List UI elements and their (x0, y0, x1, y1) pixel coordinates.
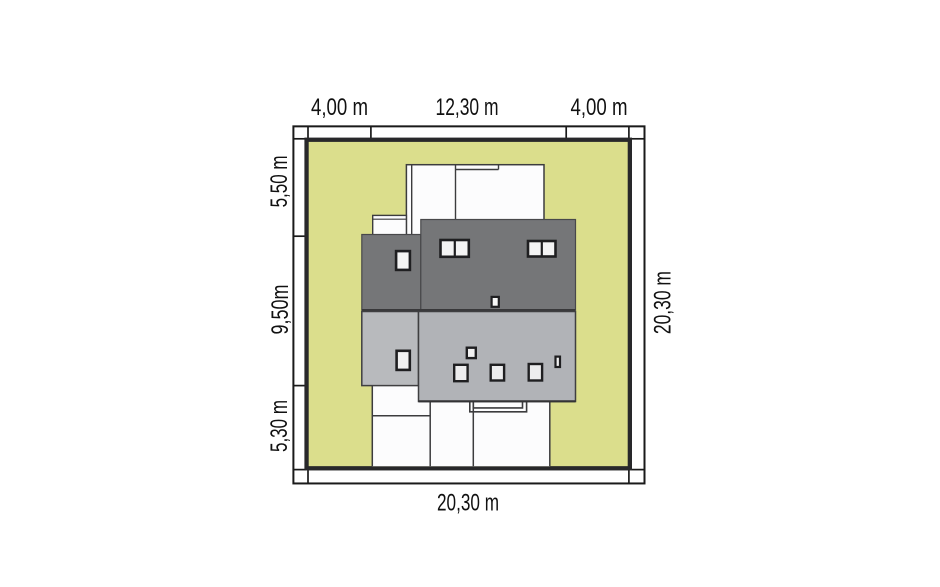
svg-text:20,30 m: 20,30 m (649, 271, 676, 334)
svg-text:20,30 m: 20,30 m (437, 490, 499, 517)
svg-text:12,30 m: 12,30 m (436, 94, 499, 121)
svg-text:9,50m: 9,50m (267, 285, 294, 335)
svg-text:4,00 m: 4,00 m (311, 94, 368, 121)
svg-text:5,50 m: 5,50 m (266, 155, 293, 207)
svg-text:5,30 m: 5,30 m (266, 400, 293, 452)
svg-text:4,00 m: 4,00 m (571, 94, 628, 121)
